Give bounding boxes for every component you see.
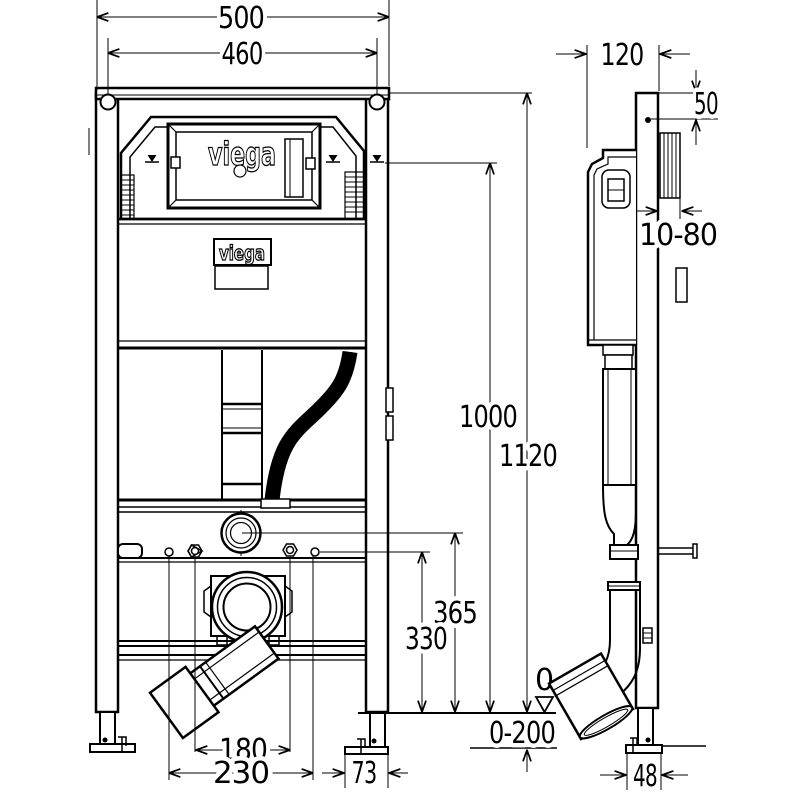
blank-plate: [215, 266, 268, 289]
dim-anchor-spacing: 460: [222, 37, 263, 72]
dim-total-width: 500: [218, 1, 264, 36]
panel-clip: [306, 158, 315, 169]
dim-frame-depth: 120: [601, 38, 644, 73]
cistern-side-profile: [588, 150, 636, 345]
flush-channel: [222, 350, 262, 500]
dim-floor-level: 0: [535, 663, 553, 698]
front-view: viega viega: [89, 88, 393, 754]
fixing-hole: [311, 548, 319, 556]
right-foot: [345, 712, 388, 754]
hose-clamp: [261, 499, 290, 508]
side-foot: [626, 708, 706, 753]
dim-foot-plate-offset: 73: [352, 756, 377, 791]
logo-dot: [234, 165, 246, 177]
fixing-hole: [165, 548, 173, 556]
dim-foot-width: 48: [633, 759, 657, 794]
dim-bolt-height: 330: [405, 622, 447, 657]
drain-elbow-side: [549, 582, 640, 743]
dim-floor-adjustment: 0-200: [489, 716, 555, 751]
corrugated-hose: [272, 352, 350, 500]
leg-clip: [386, 416, 393, 440]
anchor-hole-right: [370, 95, 385, 110]
leg-clip: [386, 388, 393, 412]
technical-drawing: viega viega: [0, 0, 800, 800]
dim-anchor-offset: 50: [694, 87, 718, 122]
brand-label-small: viega: [219, 241, 265, 265]
rail-anchor-hole: [645, 117, 651, 123]
panel-clip: [171, 157, 180, 168]
right-leg: [366, 92, 388, 712]
left-leg: [96, 92, 118, 712]
left-foot: [90, 712, 135, 752]
wall-bracket: [658, 544, 697, 558]
dim-frame-height: 1120: [499, 439, 557, 474]
flush-pipe-side: [603, 345, 638, 559]
dim-wall-clearance: 10-80: [639, 218, 717, 253]
wall-section: [660, 133, 680, 219]
dim-outlet-width: 230: [213, 756, 269, 791]
wall-clip: [676, 268, 687, 302]
dim-top-mark-height: 1000: [459, 400, 517, 435]
side-view: [549, 93, 706, 753]
level-triangle-icon: [536, 697, 553, 712]
cistern-tank: viega: [121, 117, 384, 219]
anchor-hole-left: [101, 95, 116, 110]
top-bar: [96, 88, 389, 99]
